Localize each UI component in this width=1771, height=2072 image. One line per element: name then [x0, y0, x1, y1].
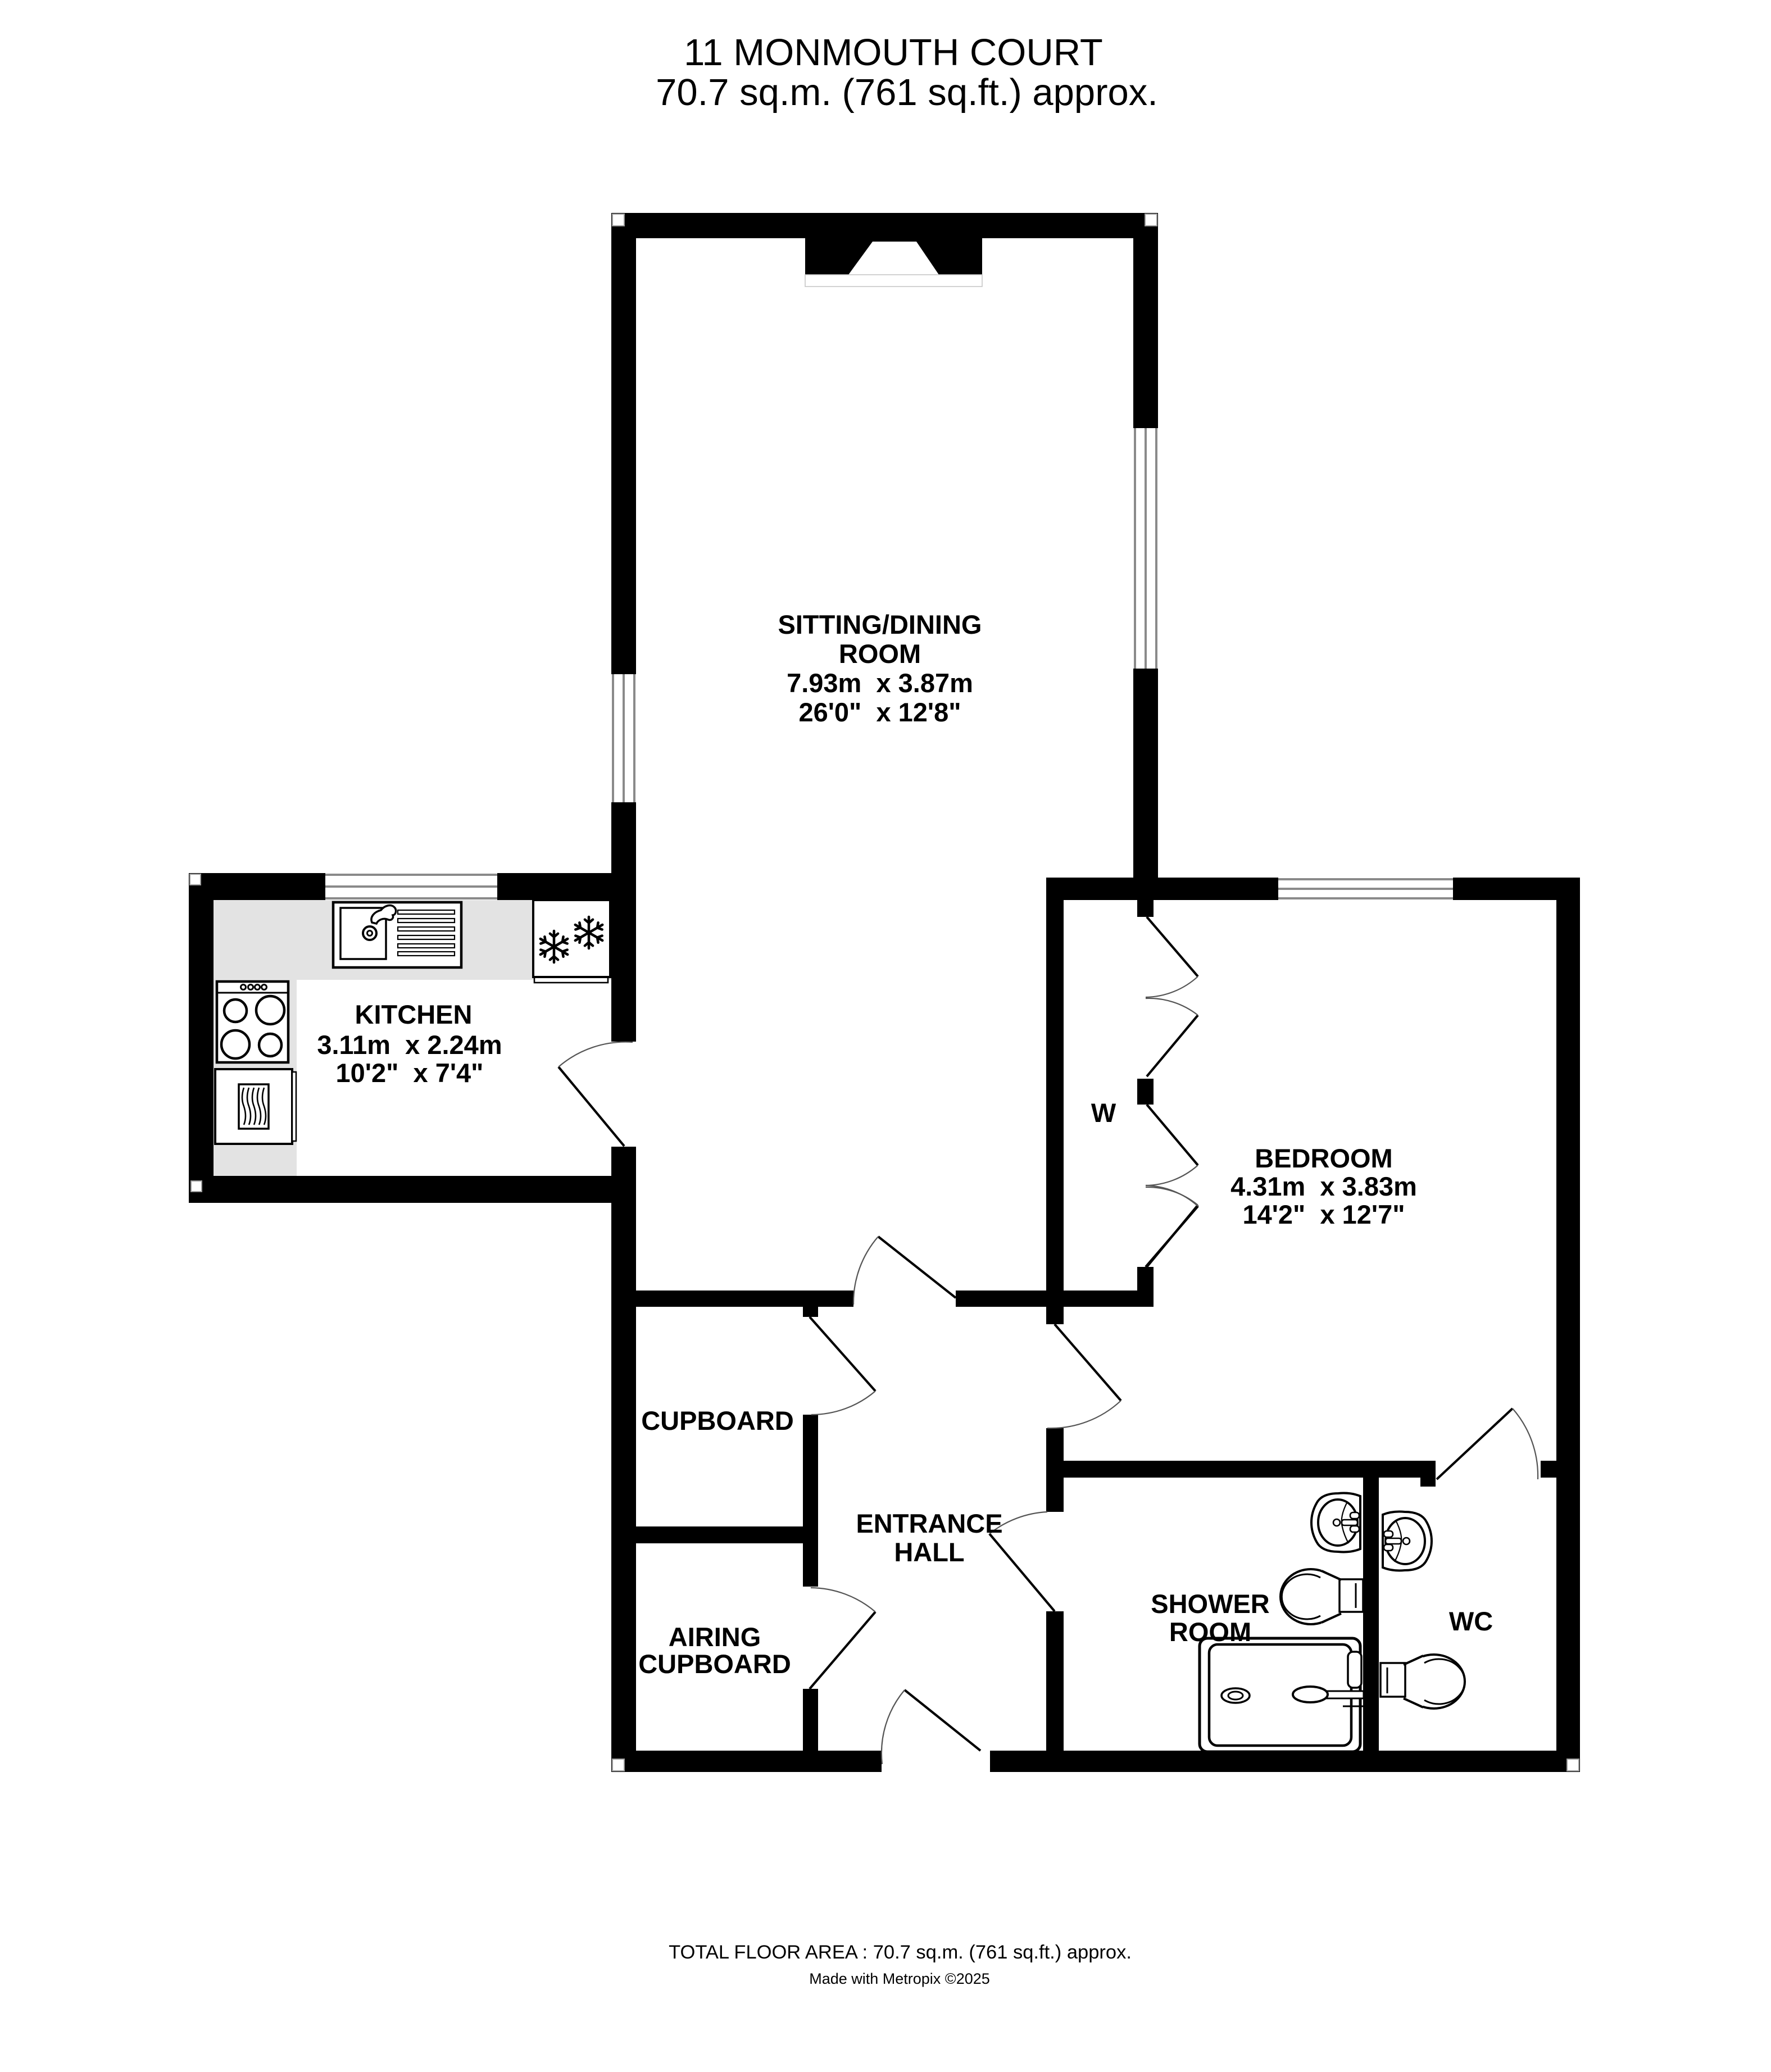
svg-text:10'2" x 7'4": 10'2" x 7'4" [336, 1058, 484, 1088]
svg-text:AIRING: AIRING [669, 1622, 761, 1652]
svg-text:SITTING/DINING: SITTING/DINING [778, 610, 982, 639]
svg-text:ROOM: ROOM [839, 639, 921, 669]
svg-text:SHOWER: SHOWER [1151, 1589, 1270, 1619]
svg-text:HALL: HALL [894, 1537, 964, 1567]
svg-text:70.7 sq.m. (761 sq.ft.) approx: 70.7 sq.m. (761 sq.ft.) approx. [656, 71, 1158, 113]
svg-text:W: W [1091, 1098, 1116, 1128]
svg-text:14'2" x 12'7": 14'2" x 12'7" [1242, 1199, 1405, 1229]
svg-text:26'0" x 12'8": 26'0" x 12'8" [798, 697, 961, 727]
svg-text:BEDROOM: BEDROOM [1255, 1143, 1392, 1173]
svg-text:WC: WC [1449, 1606, 1493, 1636]
svg-text:TOTAL FLOOR AREA : 70.7 sq.m.: TOTAL FLOOR AREA : 70.7 sq.m. (761 sq.ft… [669, 1942, 1132, 1963]
svg-text:CUPBOARD: CUPBOARD [638, 1649, 791, 1679]
svg-text:3.11m x 2.24m: 3.11m x 2.24m [317, 1030, 502, 1060]
svg-text:Made with Metropix ©2025: Made with Metropix ©2025 [809, 1970, 990, 1987]
svg-text:ENTRANCE: ENTRANCE [856, 1508, 1002, 1538]
svg-text:ROOM: ROOM [1169, 1617, 1251, 1647]
svg-text:11 MONMOUTH COURT: 11 MONMOUTH COURT [684, 31, 1103, 74]
svg-text:7.93m x 3.87m: 7.93m x 3.87m [787, 668, 973, 698]
svg-text:KITCHEN: KITCHEN [355, 999, 473, 1029]
svg-text:4.31m x 3.83m: 4.31m x 3.83m [1230, 1171, 1417, 1201]
svg-text:CUPBOARD: CUPBOARD [641, 1406, 794, 1435]
